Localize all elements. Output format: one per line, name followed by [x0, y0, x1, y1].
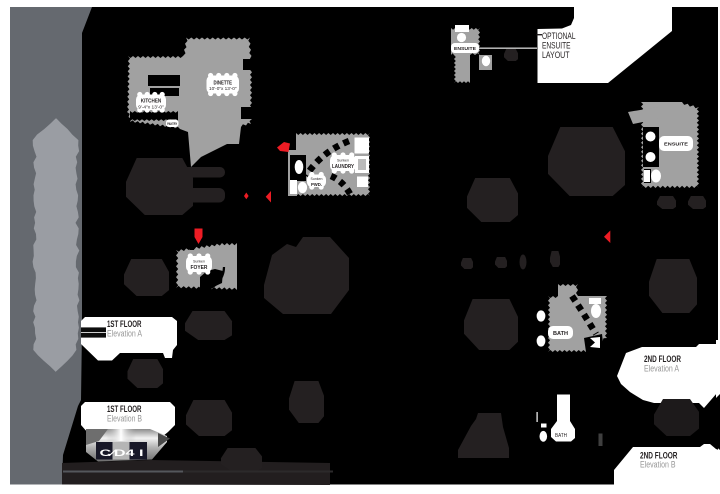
svg-text:LAYOUT: LAYOUT	[542, 49, 570, 60]
svg-text:FOYER: FOYER	[191, 265, 208, 271]
svg-text:BATH: BATH	[553, 331, 568, 337]
svg-text:Sunken: Sunken	[193, 260, 205, 264]
svg-text:LAUNDRY: LAUNDRY	[332, 164, 355, 170]
svg-text:ENSUITE: ENSUITE	[664, 142, 688, 147]
svg-text:1ST FLOOR: 1ST FLOOR	[107, 319, 142, 329]
svg-text:Sunken: Sunken	[311, 177, 323, 181]
svg-text:ENSUITE: ENSUITE	[454, 46, 476, 51]
svg-text:PANTRY: PANTRY	[167, 122, 178, 126]
svg-text:PWD.: PWD.	[311, 182, 322, 188]
svg-text:1ST FLOOR: 1ST FLOOR	[107, 404, 142, 414]
svg-text:Elevation A: Elevation A	[644, 364, 679, 374]
svg-text:2ND FLOOR: 2ND FLOOR	[644, 354, 681, 364]
svg-text:10′-0″x 13′-0″: 10′-0″x 13′-0″	[209, 86, 237, 91]
svg-text:Elevation B: Elevation B	[107, 414, 142, 424]
svg-text:9′-4″x 13′-0″: 9′-4″x 13′-0″	[138, 104, 164, 109]
svg-text:Elevation A: Elevation A	[107, 329, 142, 339]
svg-text:Elevation B: Elevation B	[640, 460, 676, 470]
svg-text:BATH: BATH	[555, 433, 567, 439]
svg-text:Sunken: Sunken	[337, 159, 349, 163]
svg-text:C∕D4 I: C∕D4 I	[100, 448, 144, 459]
